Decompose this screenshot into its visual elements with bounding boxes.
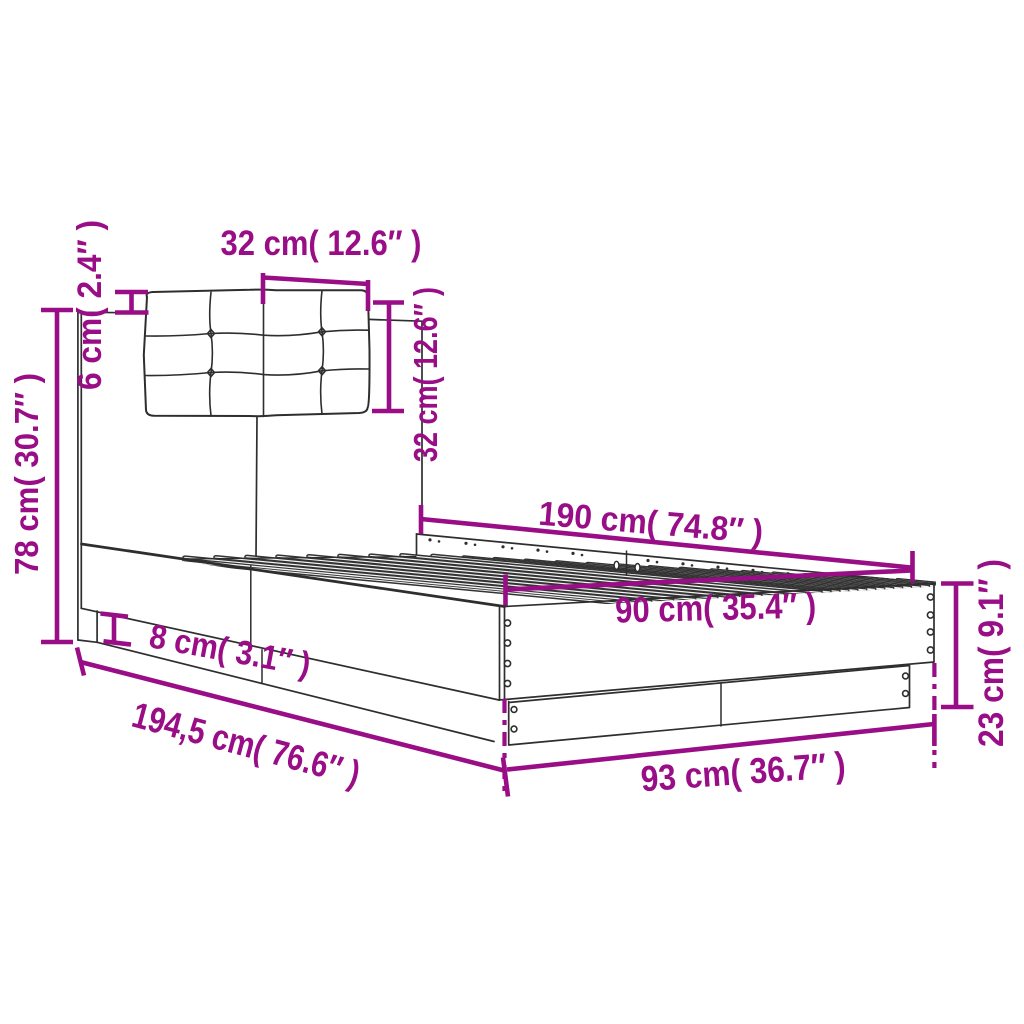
svg-text:6 cm( 2.4″ ): 6 cm( 2.4″ ) bbox=[71, 220, 109, 390]
svg-text:32 cm( 12.6″ ): 32 cm( 12.6″ ) bbox=[407, 287, 444, 462]
svg-text:78 cm( 30.7″ ): 78 cm( 30.7″ ) bbox=[8, 373, 45, 575]
svg-text:90 cm( 35.4″ ): 90 cm( 35.4″ ) bbox=[615, 584, 817, 630]
svg-text:23 cm( 9.1″ ): 23 cm( 9.1″ ) bbox=[972, 559, 1011, 747]
svg-text:32 cm( 12.6″ ): 32 cm( 12.6″ ) bbox=[221, 224, 422, 263]
